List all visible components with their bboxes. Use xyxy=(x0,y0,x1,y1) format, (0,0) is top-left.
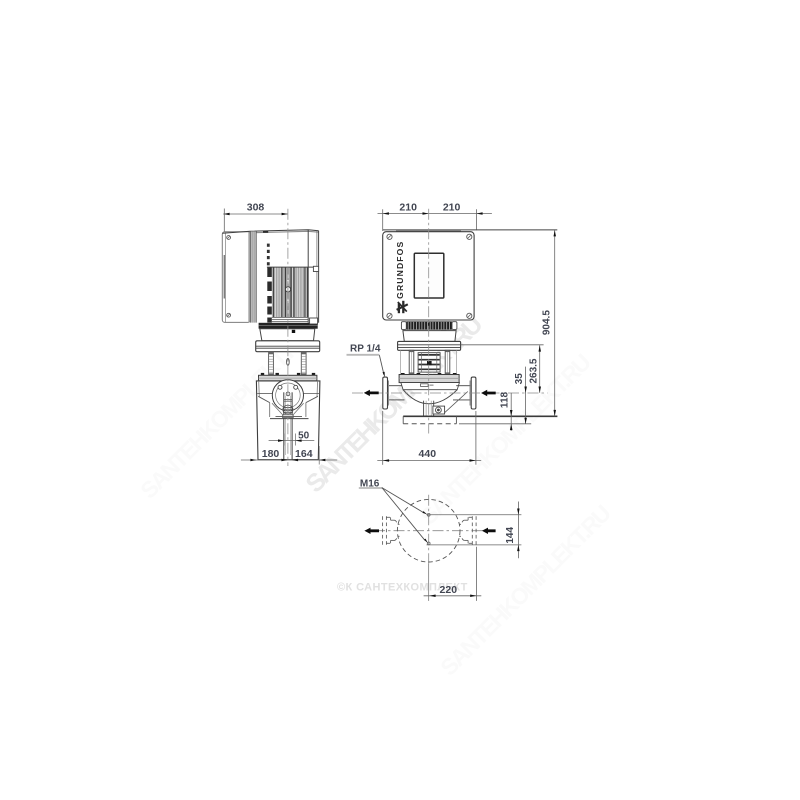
svg-text:35: 35 xyxy=(514,373,525,385)
svg-text:GRUNDFOS: GRUNDFOS xyxy=(395,242,405,299)
svg-text:440: 440 xyxy=(419,448,437,460)
svg-text:118: 118 xyxy=(499,391,510,408)
svg-text:308: 308 xyxy=(247,201,265,213)
svg-text:RP 1/4: RP 1/4 xyxy=(350,343,381,354)
svg-text:144: 144 xyxy=(505,527,516,544)
svg-text:50: 50 xyxy=(298,431,310,442)
svg-text:220: 220 xyxy=(440,584,458,596)
svg-text:263.5: 263.5 xyxy=(529,358,540,383)
svg-text:904.5: 904.5 xyxy=(542,310,553,335)
svg-text:210: 210 xyxy=(399,201,417,213)
svg-text:164: 164 xyxy=(295,448,313,460)
svg-text:180: 180 xyxy=(262,448,280,460)
svg-text:210: 210 xyxy=(443,201,461,213)
